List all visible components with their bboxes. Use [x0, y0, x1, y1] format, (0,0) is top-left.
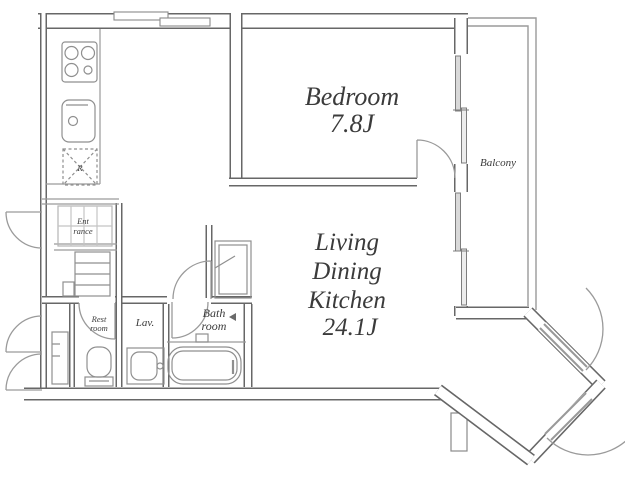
stove-burner [82, 47, 95, 60]
bath-faucet [196, 334, 208, 342]
lavatory-label: Lav. [135, 317, 154, 329]
entrance-ledge [54, 244, 117, 250]
bathtub-inner [172, 351, 237, 380]
terrace-casement-arc-2 [547, 438, 625, 455]
restroom-label-line2: room [90, 323, 108, 333]
bathroom-label-line1: Bath [203, 306, 226, 320]
ldk-window-sash-2 [462, 249, 467, 305]
ldk-size-label: 24.1J [323, 314, 380, 341]
toilet-bowl [87, 347, 111, 377]
washer-space [215, 241, 251, 298]
ldk-label-line1: Living [314, 229, 379, 256]
floorplan-canvas: Bedroom 7.8J Living Dining Kitchen 24.1J… [0, 0, 625, 487]
washroom-door-arc [173, 261, 211, 299]
entrance-label-line2: rance [73, 226, 93, 236]
entrance-label-line1: Ent [76, 216, 89, 226]
walls [24, 13, 601, 460]
wash-basin-unit [127, 348, 164, 384]
floorplan-drawing: Bedroom 7.8J Living Dining Kitchen 24.1J… [0, 0, 625, 487]
shoe-cabinet-shelves [75, 263, 110, 285]
terrace-window-ne-gap [542, 326, 585, 369]
bedroom-window-sash-1 [456, 56, 461, 111]
ldk-window-sash-1 [456, 193, 461, 251]
kitchen-sink [62, 100, 95, 142]
terrace-window-se-gap [548, 396, 589, 437]
washer-pan [219, 245, 247, 294]
stove-burner [65, 47, 78, 60]
bedroom-window-sash-2 [462, 108, 467, 163]
wash-basin [131, 352, 157, 380]
stove-burner [65, 64, 78, 77]
bedroom-door-arc [417, 140, 455, 178]
pipe-space [52, 332, 68, 384]
exterior-storage-door-arc-2 [6, 354, 42, 390]
pipe-space-ticks [52, 344, 60, 356]
basin-faucet [157, 363, 163, 369]
exterior-storage-door-arc-1 [6, 316, 42, 352]
wall-notch [451, 413, 467, 451]
entrance-step [42, 199, 119, 204]
kitchen-counter-edge [46, 29, 100, 184]
terrace-casement-arc-1 [586, 288, 603, 370]
bath-door-mark [229, 312, 238, 322]
entrance-box [63, 282, 74, 296]
balcony-label: Balcony [480, 157, 516, 169]
bathroom-label-line2: room [202, 319, 227, 333]
washer-fold-mark [215, 256, 235, 268]
refrigerator-label: R [76, 163, 83, 173]
bedroom-label: Bedroom [305, 82, 399, 111]
entrance-door-arc [6, 212, 42, 248]
bedroom-size-label: 7.8J [330, 109, 376, 138]
bathtub [168, 347, 241, 384]
windows [114, 12, 592, 440]
ldk-label-line3: Kitchen [307, 287, 386, 314]
sink-drain [69, 117, 78, 126]
fixtures [52, 42, 251, 386]
stove-burner-small [84, 66, 92, 74]
ldk-label-line2: Dining [311, 258, 381, 285]
north-window-pane-2 [160, 18, 210, 26]
